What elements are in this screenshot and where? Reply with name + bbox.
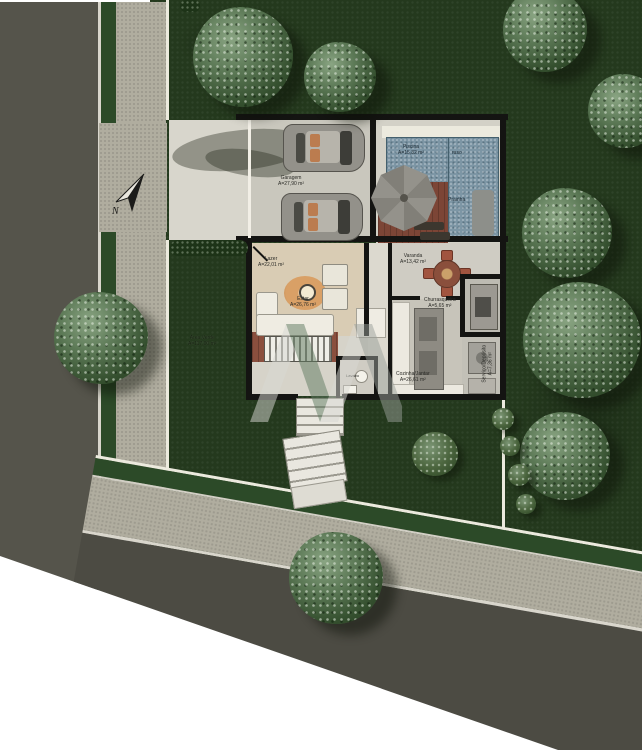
hedge-front: [170, 240, 248, 256]
wall-service-top: [460, 332, 502, 337]
label-varanda: VarandaA=13,42 m²: [400, 254, 426, 266]
site-plan-page: GaragemA=27,90 m² PiscinaA=15,32 m² raso…: [0, 0, 642, 750]
armchair-1: [322, 264, 348, 286]
tree: [304, 42, 376, 112]
armchair-2: [322, 288, 348, 310]
label-churrasqueira: ChurrasqueiraA=5,65 m²: [424, 298, 456, 310]
wall-house-right: [500, 238, 506, 400]
car-2: [281, 193, 363, 241]
car-seat: [310, 134, 320, 147]
tree: [54, 292, 148, 384]
wall-pool-right: [500, 114, 506, 244]
small-tree: [412, 432, 458, 476]
north-arrow: N: [106, 170, 154, 218]
bush: [516, 494, 536, 514]
wall-varanda-kitchen: [390, 296, 420, 300]
car-1: [283, 124, 365, 172]
bush: [508, 464, 530, 486]
label-prainha: Prainha: [448, 198, 465, 204]
front-fence-upper: [166, 0, 169, 120]
bush: [500, 436, 520, 456]
label-lazer: LazerA=22,01 m²: [258, 257, 284, 269]
pool-ledge: [472, 190, 494, 236]
wall-churras-top: [460, 274, 502, 279]
car-rear-window: [294, 202, 303, 232]
label-garagem: GaragemA=27,90 m²: [278, 176, 304, 188]
tree: [523, 282, 641, 398]
car-seat: [310, 149, 320, 162]
label-area-verde: Área VerdeA=117,00 m²: [188, 336, 216, 348]
car-windshield: [340, 131, 352, 165]
wall-mid: [236, 236, 508, 242]
label-piscina: PiscinaA=15,32 m²: [398, 145, 424, 157]
site-plan-scene: GaragemA=27,90 m² PiscinaA=15,32 m² raso…: [0, 0, 642, 750]
car-rear-window: [296, 133, 305, 163]
car-windshield: [338, 200, 350, 234]
sun-lounger-2: [420, 232, 450, 240]
wall-churras-left: [460, 274, 465, 336]
wall-garage-pool: [370, 114, 376, 240]
north-letter: N: [111, 206, 120, 217]
grill-pit: [475, 297, 491, 317]
m-logo-icon: [250, 324, 402, 422]
wall-living-hall: [364, 243, 369, 336]
car-seat: [308, 218, 318, 231]
tree: [520, 412, 610, 500]
garage-left-edge: [248, 120, 251, 238]
dining-table: [433, 260, 461, 288]
island-top: [419, 317, 437, 341]
hedge-top: [180, 0, 200, 12]
bush: [492, 408, 514, 430]
watermark-logo: [250, 324, 402, 422]
verge-left: [101, 2, 116, 480]
label-servico: Serviço/DepósitoA=7,36 m²: [482, 334, 494, 394]
tree: [193, 7, 293, 107]
north-arrow-icon: N: [106, 170, 154, 218]
sidewalk-left: [116, 2, 166, 522]
bbq-grill: [470, 284, 498, 330]
car-seat: [308, 203, 318, 216]
label-estar: EstarA=26,76 m²: [290, 297, 316, 309]
tree: [289, 532, 383, 624]
tree: [522, 188, 612, 278]
front-fence-lower: [166, 240, 169, 472]
label-raso: raso: [452, 151, 462, 157]
